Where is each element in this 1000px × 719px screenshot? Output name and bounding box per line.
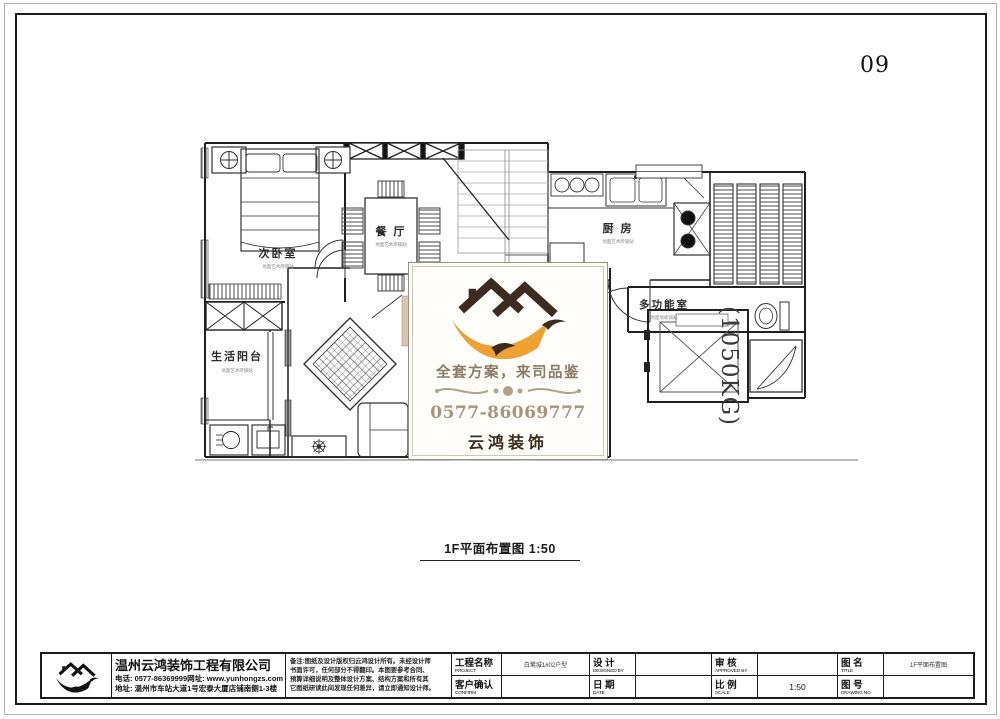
watermark-slogan: 全套方案，来司品鉴 <box>436 361 580 382</box>
louver-closet <box>714 184 802 284</box>
balcony <box>205 302 285 455</box>
svg-text:地面艺术砖铺贴: 地面艺术砖铺贴 <box>221 367 253 374</box>
field-label-title: 图 名 TITLE <box>838 654 884 675</box>
sofa-icon <box>358 403 408 457</box>
room-label: 厨 房 <box>602 221 633 235</box>
field-label-project: 工程名称 PROJECT <box>452 654 502 675</box>
watermark-box: 全套方案，来司品鉴 0577-86069777 云鸿装饰 <box>408 262 608 460</box>
field-label-confirm: 客户确认 CONFIRM <box>452 676 502 697</box>
svg-text:地面艺术砖铺贴: 地面艺术砖铺贴 <box>602 238 634 245</box>
laundry-sink-icon <box>252 425 285 455</box>
field-value-scale: 1:50 <box>758 676 837 697</box>
company-logo-cell <box>42 654 112 697</box>
project-confirm-column: 工程名称 PROJECT 白鹭城1#02户型 客户确认 CONFIRM <box>452 654 590 697</box>
room-label: 多功能室 <box>639 298 689 311</box>
room-label: 次卧室 <box>259 246 298 260</box>
elevator-capacity-label: (1050KG) <box>716 306 742 426</box>
company-logo-icon <box>49 658 105 694</box>
flower-icon <box>312 439 327 454</box>
hob-icon <box>555 178 599 192</box>
notes-cell: 备注:图纸及设计版权归云鸿设计所有。未经设计师 书面许可，任何部分不得翻印。本图… <box>286 654 452 697</box>
corner-closet <box>750 340 802 392</box>
field-label-drawingno: 图 号 DRAWING NO <box>838 676 884 697</box>
watermark-brand: 云鸿装饰 <box>468 429 548 453</box>
field-value-drawingno <box>884 676 973 697</box>
washing-machine-icon <box>210 425 248 455</box>
rug-icon <box>304 318 396 410</box>
drawing-caption: 1F平面布置图 1:50 <box>420 538 580 561</box>
house-birds-logo-icon <box>433 271 583 359</box>
field-value-title: 1F平面布置图 <box>884 654 973 675</box>
svg-text:地面艺术砖铺贴: 地面艺术砖铺贴 <box>262 263 294 270</box>
ornament-icon <box>433 382 583 400</box>
design-date-column: 设 计 DESIGNED BY 日 期 DATE <box>590 654 712 697</box>
title-block: 温州云鸿装饰工程有限公司 电话: 0577-86369999网址: www.yu… <box>40 652 975 699</box>
field-value-date <box>636 676 711 697</box>
field-value-approved <box>758 654 837 675</box>
bed-icon <box>241 149 319 251</box>
kitchen-sink-icon <box>606 174 666 206</box>
watermark-inner: 全套方案，来司品鉴 0577-86069777 云鸿装饰 <box>412 266 604 456</box>
field-value-project: 白鹭城1#02户型 <box>502 654 589 675</box>
room-label: 餐 厅 <box>374 224 406 238</box>
approve-scale-column: 审 核 APPROVED BY 比 例 SCALE 1:50 <box>712 654 838 697</box>
toilet-icon <box>755 302 789 330</box>
stove-icon <box>674 203 710 255</box>
ceiling-lamp-icon <box>325 152 342 169</box>
company-info-cell: 温州云鸿装饰工程有限公司 电话: 0577-86369999网址: www.yu… <box>112 654 286 697</box>
field-label-approved: 审 核 APPROVED BY <box>712 654 758 675</box>
company-name: 温州云鸿装饰工程有限公司 <box>115 655 282 674</box>
drawing-sheet: 09 <box>0 0 1000 719</box>
svg-text:地面地板铺贴: 地面地板铺贴 <box>651 314 678 321</box>
title-drawingno-column: 图 名 TITLE 1F平面布置图 图 号 DRAWING NO <box>838 654 973 697</box>
room-label: 生活阳台 <box>211 349 263 363</box>
field-label-design: 设 计 DESIGNED BY <box>590 654 636 675</box>
company-tel: 电话: 0577-86369999网址: www.yunhongzs.com <box>115 674 282 684</box>
field-label-scale: 比 例 SCALE <box>712 676 758 697</box>
field-value-confirm <box>502 676 589 697</box>
door-arc <box>317 250 345 278</box>
svg-text:地面艺术砖铺贴: 地面艺术砖铺贴 <box>375 241 407 248</box>
ceiling-lamp-icon <box>221 152 238 169</box>
company-address: 地址: 温州市车站大道1号宏泰大厦店铺南侧1-3楼 <box>115 684 282 694</box>
wardrobe-icon <box>209 284 281 299</box>
tv-cabinet-icon <box>292 436 346 457</box>
bedroom-furniture <box>209 147 350 299</box>
watermark-phone: 0577-86069777 <box>430 403 586 423</box>
field-value-design <box>636 654 711 675</box>
field-label-date: 日 期 DATE <box>590 676 636 697</box>
window-boxes <box>344 143 464 159</box>
